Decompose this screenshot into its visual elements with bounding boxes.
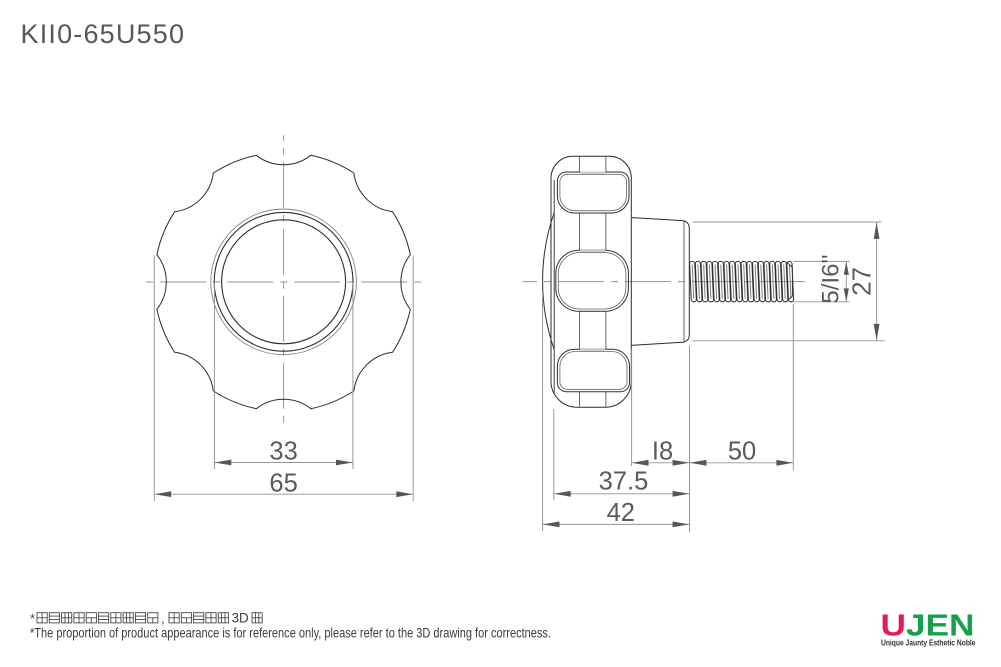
svg-text:42: 42 [607, 499, 635, 527]
svg-text:*The proportion of product app: *The proportion of product appearance is… [30, 625, 551, 641]
svg-text:UJEN: UJEN [881, 607, 975, 642]
svg-text:5/I6'': 5/I6'' [818, 254, 845, 303]
svg-text:33: 33 [269, 438, 297, 466]
svg-text:50: 50 [728, 438, 756, 466]
svg-text:Unique Jaunty Esthetic Noble: Unique Jaunty Esthetic Noble [881, 638, 976, 647]
svg-text:KII0-65U550: KII0-65U550 [21, 19, 185, 49]
svg-text:3D: 3D [232, 611, 250, 626]
svg-text:I8: I8 [652, 438, 673, 466]
svg-text:65: 65 [269, 469, 297, 497]
svg-text:27: 27 [847, 267, 877, 296]
svg-text:37.5: 37.5 [599, 468, 649, 496]
